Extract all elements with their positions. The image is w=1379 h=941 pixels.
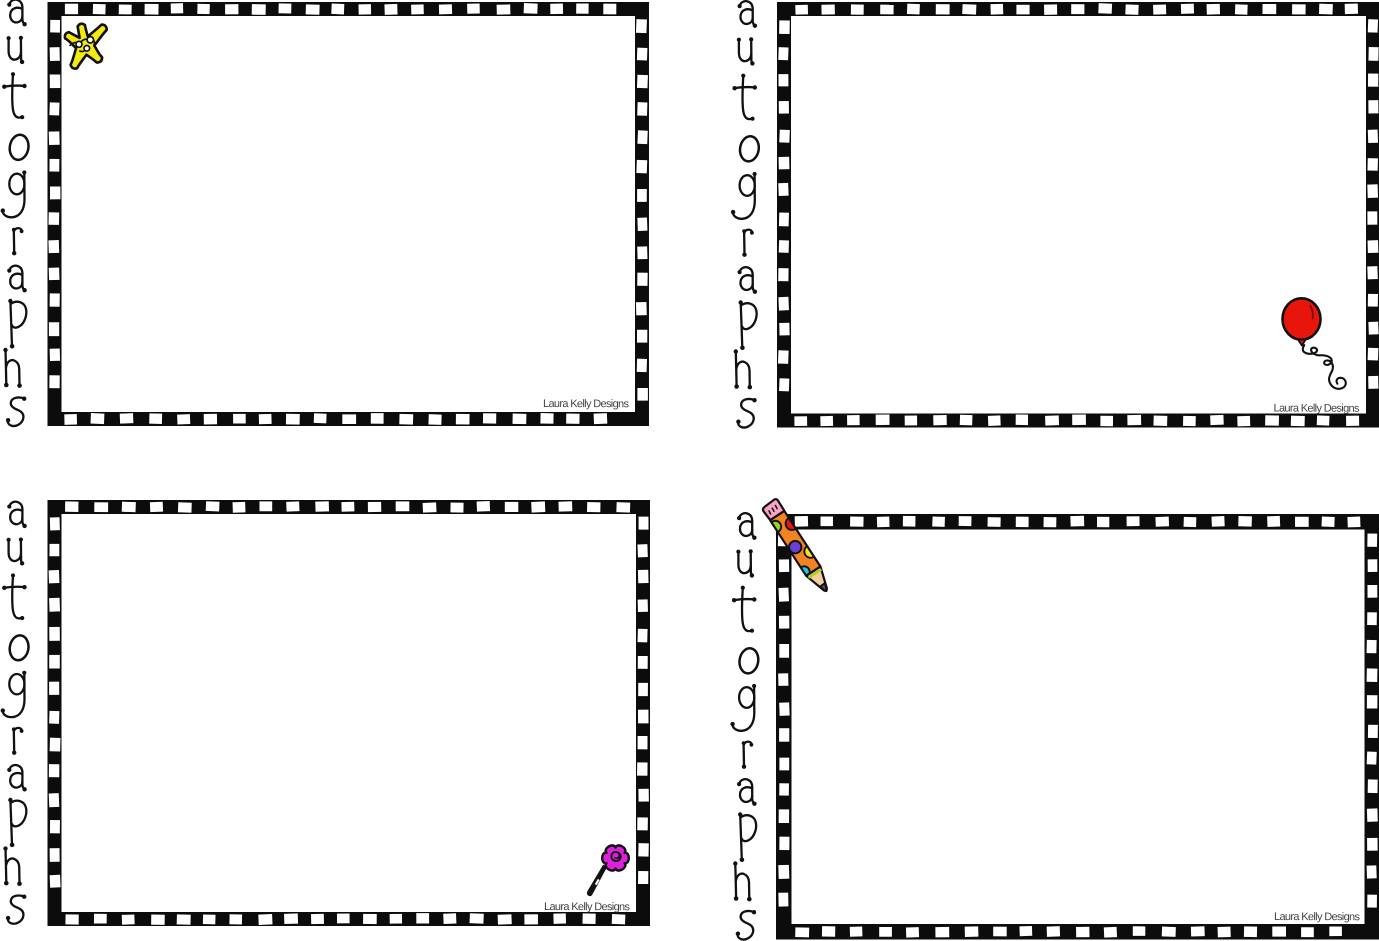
- svg-text:Laura Kelly Designs: Laura Kelly Designs: [1274, 911, 1361, 923]
- svg-text:Laura Kelly Designs: Laura Kelly Designs: [544, 901, 631, 913]
- svg-text:Laura Kelly Designs: Laura Kelly Designs: [1273, 403, 1360, 415]
- svg-text:Laura Kelly Designs: Laura Kelly Designs: [543, 398, 630, 410]
